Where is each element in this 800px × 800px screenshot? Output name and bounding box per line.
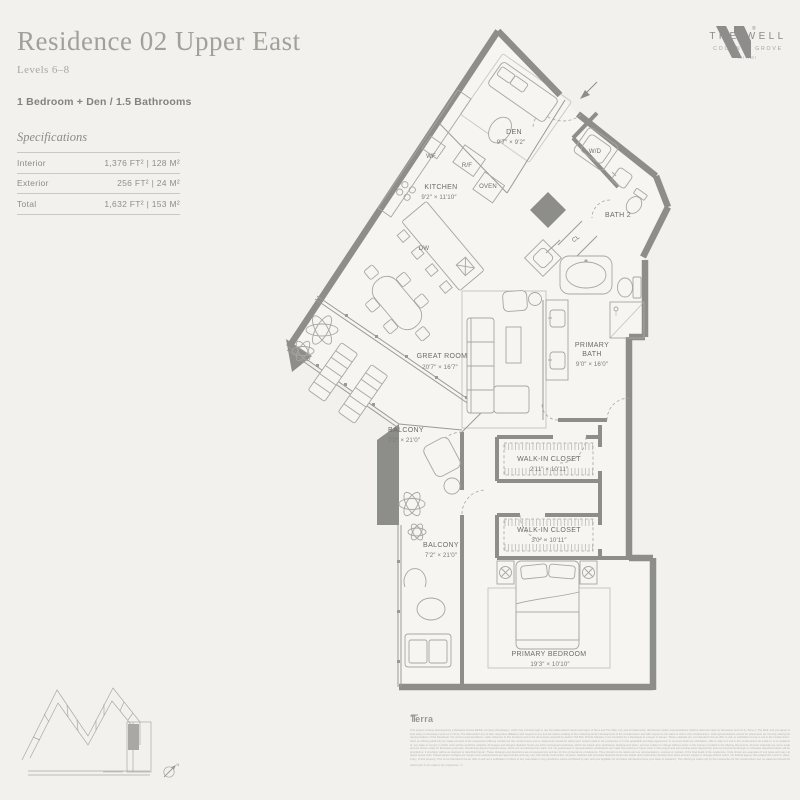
primary-bedroom-label: PRIMARY BEDROOM xyxy=(511,651,586,658)
compass xyxy=(164,765,176,777)
wic2-dims: 3′0″ × 10′11″ xyxy=(531,537,567,544)
terra-logo-icon xyxy=(410,714,419,723)
floorplan-sheet: Residence 02 Upper East Levels 6–8 1 Bed… xyxy=(0,0,800,800)
disclaimer-text: This project is being developed by a Del… xyxy=(410,729,790,767)
legal-disclaimer: This project is being developed by a Del… xyxy=(410,729,790,768)
great-room-label: GREAT ROOM xyxy=(417,353,468,360)
balcony-upper-label: BALCONY xyxy=(388,427,424,434)
wic2-label: WALK-IN CLOSET xyxy=(517,527,581,534)
oven-label: OVEN xyxy=(479,184,497,190)
wf-label: WF xyxy=(426,154,436,160)
primary-bath-label-2: BATH xyxy=(582,351,602,358)
balcony-lower-dims: 7′2″ × 21′0″ xyxy=(425,552,458,559)
entry-arrow xyxy=(580,82,597,99)
wd-label: W/D xyxy=(589,149,602,155)
developer-brand: Terra xyxy=(410,714,433,724)
primary-bedroom-dims: 19′3″ × 10′10″ xyxy=(530,661,570,668)
compass-north-label: N xyxy=(177,763,180,767)
wic1-dims: 2′11″ × 10′11″ xyxy=(530,466,569,473)
kitchen-dims: 9′2″ × 11′10″ xyxy=(421,194,457,201)
floorplan-drawing: DEN9′7″ × 9′2″WFR/FOVENKITCHEN9′2″ × 11′… xyxy=(0,0,800,800)
key-plan xyxy=(22,688,151,775)
den-dims: 9′7″ × 9′2″ xyxy=(497,139,526,146)
rf-label: R/F xyxy=(462,163,472,169)
balcony-upper-dims: 7′2″ × 21′0″ xyxy=(388,437,421,444)
primary-bath-label-1: PRIMARY xyxy=(575,342,609,349)
dw-label: DW xyxy=(419,246,430,252)
bath2-label: BATH 2 xyxy=(605,212,631,219)
wic1-label: WALK-IN CLOSET xyxy=(517,456,581,463)
primary-bath-dims: 9′0″ × 16′0″ xyxy=(576,361,609,368)
equal-housing-icon: ⌂ xyxy=(460,762,463,767)
den-label: DEN xyxy=(506,129,522,136)
kitchen-label: KITCHEN xyxy=(424,184,457,191)
balcony-lower-label: BALCONY xyxy=(423,542,459,549)
great-room-dims: 20′7″ × 16′7″ xyxy=(422,364,458,371)
